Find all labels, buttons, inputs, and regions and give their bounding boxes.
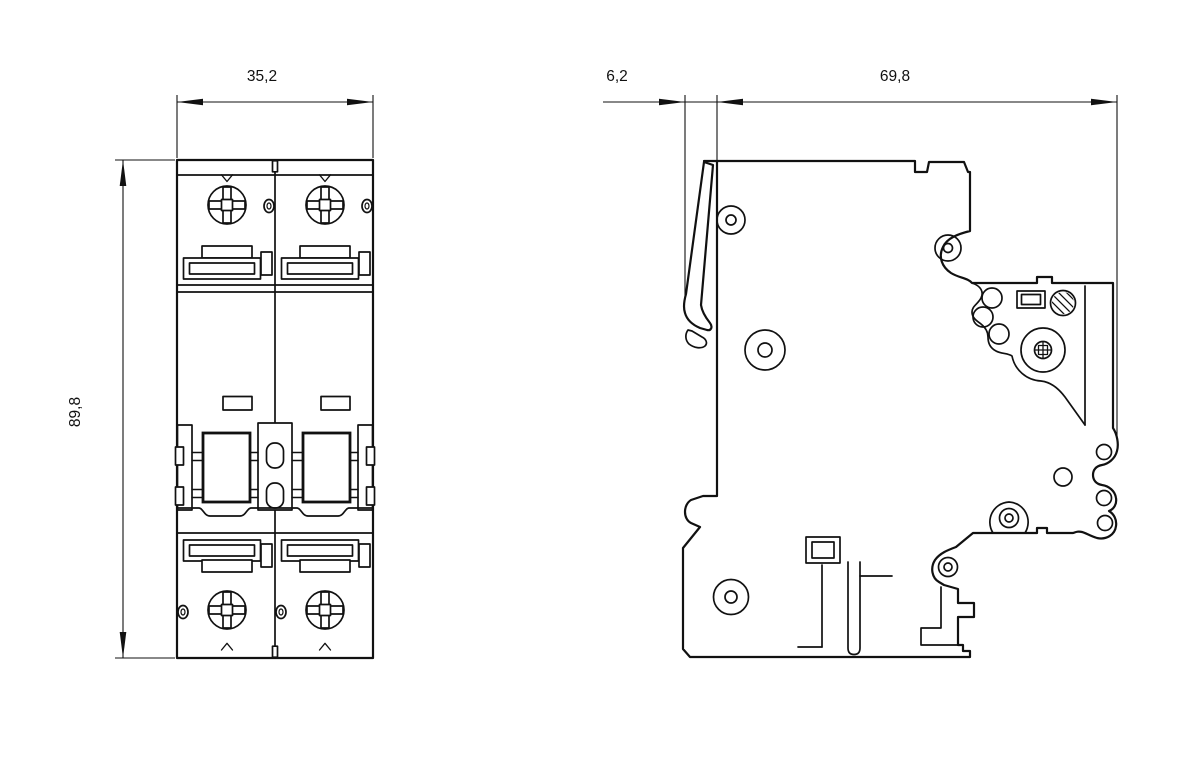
arrowhead-icon bbox=[120, 632, 127, 658]
toggle-assembly bbox=[176, 423, 375, 516]
toggle-lever-left bbox=[203, 433, 250, 502]
arrowhead-icon bbox=[717, 99, 743, 106]
arrowhead-icon bbox=[120, 160, 127, 186]
phillips-screw-icon bbox=[306, 186, 344, 224]
side-depth-label: 69,8 bbox=[880, 68, 910, 85]
terminal-clip-icon bbox=[362, 200, 372, 213]
din-clip-claw bbox=[686, 330, 707, 348]
phillips-screw-icon bbox=[208, 591, 246, 629]
terminal-clip-icon bbox=[178, 606, 188, 619]
phillips-screw-icon bbox=[208, 186, 246, 224]
rating-window bbox=[223, 397, 252, 411]
rating-window bbox=[321, 397, 350, 411]
side-body-outline bbox=[683, 161, 1118, 657]
terminal-clip-icon bbox=[276, 606, 286, 619]
dimension-drawing: 35,2 89,8 bbox=[0, 0, 1200, 761]
front-height-label: 89,8 bbox=[67, 397, 84, 427]
arrowhead-icon bbox=[177, 99, 203, 106]
front-width-dimension: 35,2 bbox=[177, 68, 373, 158]
side-offset-label: 6,2 bbox=[606, 68, 628, 85]
toggle-lever-right bbox=[303, 433, 350, 502]
din-clip-spring bbox=[684, 162, 713, 330]
front-view: 35,2 89,8 bbox=[67, 68, 375, 658]
arrowhead-icon bbox=[659, 99, 685, 106]
phillips-screw-icon bbox=[306, 591, 344, 629]
front-height-dimension: 89,8 bbox=[67, 160, 175, 658]
terminal-clip-icon bbox=[264, 200, 274, 213]
arrowhead-icon bbox=[1091, 99, 1117, 106]
front-bottom-center-tab bbox=[273, 646, 278, 657]
arrowhead-icon bbox=[347, 99, 373, 106]
adjustment-screw-icon bbox=[1021, 328, 1065, 372]
side-view: 6,2 69,8 bbox=[603, 68, 1118, 657]
front-width-label: 35,2 bbox=[247, 68, 277, 85]
drawing-sheet: 35,2 89,8 bbox=[0, 0, 1200, 761]
front-top-center-tab bbox=[273, 161, 278, 172]
